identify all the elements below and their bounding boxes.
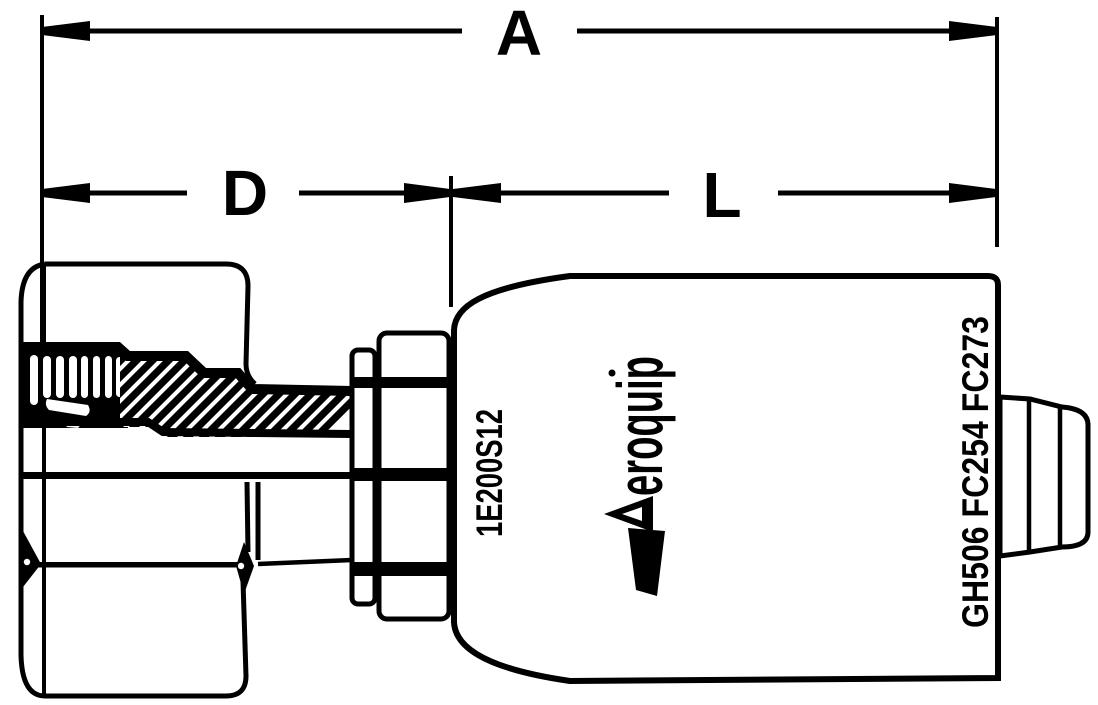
svg-text:1E200S12: 1E200S12 bbox=[469, 409, 510, 537]
svg-text:eroquip: eroquip bbox=[604, 356, 676, 496]
svg-text:GH506 FC254 FC273: GH506 FC254 FC273 bbox=[955, 316, 996, 628]
svg-text:A: A bbox=[496, 0, 542, 69]
svg-text:D: D bbox=[222, 157, 268, 229]
svg-text:L: L bbox=[702, 159, 741, 231]
